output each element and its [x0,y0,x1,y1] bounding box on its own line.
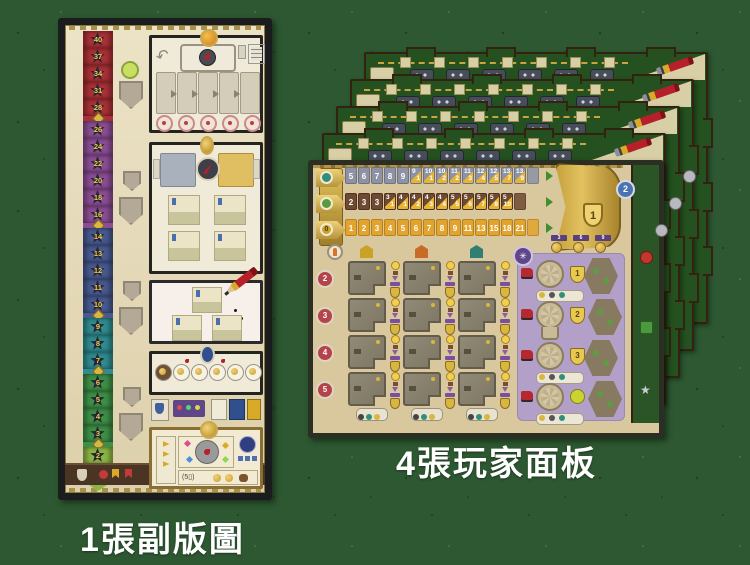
split-bottom-value: 4 [481,175,485,183]
rail-station-icon [386,84,397,95]
gold-dot [376,377,380,381]
terrain-mark [464,349,471,354]
slot-rewards [444,372,456,406]
time-panel: ↶ [149,35,263,133]
track-cell-split: 57 [475,193,487,210]
bird-oval-icon [200,345,215,364]
split-top-value: 4 [425,194,429,202]
board-edge-tab [364,128,394,138]
gold-dot [486,266,490,270]
split-bottom-value: 3 [429,201,433,209]
arrow-down-icon [502,350,508,355]
split-top-value: 9 [412,168,416,176]
medallion-value: 6 [573,235,589,241]
score-space: 4 [83,408,113,425]
list-icon [248,44,265,64]
arrow-icon [546,171,553,181]
plant-icon [593,268,599,274]
row-badge: 3 [316,307,334,325]
rail-station-icon [576,111,587,122]
slot-notch [428,395,441,406]
contract-bonus-pill [536,413,584,425]
board-green-edge: ★ [631,165,659,423]
track-cell: 13 [475,219,487,236]
split-bottom-value: 9 [520,175,524,183]
terrain-mark [354,386,361,391]
split-bottom-value: 2 [442,175,446,183]
map-card-slot [192,287,222,313]
wood-icon [503,271,508,275]
rail-station-icon [562,138,573,149]
compass-icon [196,157,220,181]
goods-hex-slot [584,258,618,294]
pill-icon [559,292,565,298]
bird-icon [205,54,210,60]
score-value: 2 [83,451,113,460]
arrow-down-icon [392,350,398,355]
caption-player-boards: 4張玩家面板 [396,436,597,485]
slot-rewards [499,372,511,406]
track-cell-split: 55 [449,193,461,210]
shield-icon [500,361,510,372]
gold-dot [431,266,435,270]
slot-notch [428,284,441,295]
board-edge-tab [618,101,648,111]
medal-icon [551,242,562,253]
bird-icon [185,359,189,363]
shield-icon [445,361,455,372]
card-slot [211,399,227,420]
fruit-icon [320,171,333,184]
slot-rewards [444,298,456,332]
shield-icon [390,398,400,409]
purple-tag-icon [445,393,455,397]
stage: 0 56789911011021121131241251371392333141… [0,0,750,565]
rail-station-icon [460,138,471,149]
board-edge-tab [604,128,634,138]
arrow-icon [192,90,198,98]
hazard-icon [570,389,585,404]
pen-panel [149,280,263,344]
board-edge-tab [458,101,488,111]
score-space: 22 [83,155,113,172]
bulb-icon [391,261,400,270]
curved-arrow-icon: ↶ [153,44,172,67]
split-bottom-value: 1 [390,201,394,209]
track-cell-split: 102 [436,167,448,184]
terrain-mark [409,275,416,280]
score-space: 37 [83,48,113,65]
track-cell-split: 91 [410,167,422,184]
gold-dot [431,340,435,344]
shield-slot [119,413,143,441]
score-space: 6 [83,374,113,391]
goods-hex-slot [588,299,622,335]
engine-icon [521,268,533,277]
pill-icon [374,414,380,420]
row-badge: 4 [316,344,334,362]
split-top-value: 4 [412,194,416,202]
rosette-slot [536,342,564,370]
plant-icon [607,319,613,325]
terrain-mark [409,386,416,391]
board-edge-tab [472,74,502,84]
blue-token-slot [236,436,258,466]
slot-rewards [389,372,401,406]
medal-icon [573,242,584,253]
score-value: 34 [83,69,113,78]
goods-hex-slot [588,381,622,417]
purple-tag-icon [445,356,455,360]
track-cell: 15 [488,219,500,236]
flag-slot [156,436,176,484]
shield-icon [445,287,455,298]
score-space: 13 [83,245,113,262]
slot-rewards [499,335,511,369]
building-slot [403,298,441,332]
pill-icon [366,414,372,420]
score-track-ribbon: 4037343128262422201816141312111098765432… [83,31,113,491]
building-slot [403,372,441,406]
track-cell-split: 44 [436,193,448,210]
split-bottom-value: 1 [429,175,433,183]
split-bottom-value: 8 [494,201,498,209]
shield-slot [123,171,141,191]
clock-icon [199,49,216,66]
ink-bottle-icon [200,136,214,155]
plant-icon [603,278,609,284]
pill-icon [358,414,364,420]
shield-icon: 3 [570,348,585,365]
pill-icon [421,414,427,420]
rail-station-icon [474,111,485,122]
score-value: 13 [83,249,113,258]
shield-slot [123,281,141,301]
split-top-value: 5 [490,194,494,202]
slot-notch [428,358,441,369]
track-cell-split: 137 [501,167,513,184]
rail-station-icon [536,57,547,68]
map-card-slot [214,231,246,261]
bonus-pill [466,408,498,421]
score-space: 9 [83,318,113,335]
split-bottom-value: 1 [403,201,407,209]
building-icon [415,245,428,258]
building-slot [348,261,386,295]
rail-station-icon [590,84,601,95]
bulb-icon [446,298,455,307]
building-slot [458,335,496,369]
score-value: 37 [83,52,113,61]
blue-shield-icon [155,403,164,414]
purple-tag-icon [390,319,400,323]
medal-slot [173,364,190,381]
score-space: 40 [83,31,113,48]
slot-notch [483,395,496,406]
rail-station-icon [454,84,465,95]
bulb-icon [501,261,510,270]
rail-station-icon [372,111,383,122]
score-value: 40 [83,35,113,44]
silver-coin [669,197,682,210]
engine-icon [521,391,533,400]
token-strip [149,399,263,423]
gold-dot [376,266,380,270]
track-cell: 9 [449,219,461,236]
pill-icon [539,374,545,380]
score-value: 22 [83,159,113,168]
purple-tag-icon [390,282,400,286]
bird-target-slot [178,436,234,468]
player-board-front: 0 56789911011021121131241251371392333141… [308,160,664,438]
flag-icon [163,461,170,467]
rail-station-icon [488,84,499,95]
gold-card-slot [247,399,261,420]
medallion: 6 [573,235,591,241]
shield-slot [123,387,141,407]
score-value: 11 [83,283,113,292]
track-cell-split: 42 [410,193,422,210]
track-cell: 3 [371,219,383,236]
wood-icon [448,271,453,275]
board-edge-tab [703,118,713,148]
card-count-label: (5▯) [182,474,194,481]
map-card-slot [214,195,246,225]
gold-dot [431,303,435,307]
rail-station-icon [426,138,437,149]
track-cell-split: 101 [423,167,435,184]
row-badge: 5 [316,381,334,399]
split-top-value: 4 [438,194,442,202]
split-bottom-value: 2 [455,175,459,183]
split-bottom-value: 4 [442,201,446,209]
rosette-slot [536,260,564,288]
pill-icon [549,415,555,421]
pill-icon [539,292,545,298]
rail-station-icon [392,138,403,149]
track-cell: 9 [397,167,409,184]
bulb-icon [391,372,400,381]
arrow-icon [234,90,240,98]
goods-hex-slot [584,340,618,376]
slot-rewards [389,261,401,295]
building-slot [348,372,386,406]
score-space: 14 [83,228,113,245]
bulb-icon [391,335,400,344]
arrow-down-icon [392,276,398,281]
score-space: 31 [83,82,113,99]
round-marker-slot [178,115,195,132]
terrain-mark [409,349,416,354]
board-edge-tab [406,47,436,57]
board-edge-tab [689,273,699,303]
shield-icon: 1 [583,203,603,227]
bulb-icon [501,298,510,307]
shield-icon [390,324,400,335]
wood-icon [393,382,398,386]
purple-tag-icon [500,356,510,360]
building-slot [458,261,496,295]
arrow-icon [171,90,177,98]
track-cell-split: 43 [423,193,435,210]
rail-station-icon [522,84,533,95]
gold-dot [486,377,490,381]
board-edge-tab [703,246,713,276]
track-cell: 5 [397,219,409,236]
rail-station-icon [406,111,417,122]
plant-icon [607,401,613,407]
building-icon [470,245,483,258]
rail-station-icon [528,138,539,149]
arrow-icon [213,90,219,98]
slot-notch [428,321,441,332]
terrain-mark [464,386,471,391]
lime-token-icon [121,61,139,79]
slot-notch [483,358,496,369]
track-row-gold-track: 1234567891113151821 [345,219,540,236]
arrow-icon [546,197,553,207]
pill-icon [539,415,545,421]
gold-seal-icon [200,421,218,439]
card-slot-blue [160,153,196,187]
track-row-gray-track: 5678991101102112113124125137139 [345,167,540,184]
arrow-down-icon [392,313,398,318]
banner-slot [173,400,205,417]
track-cell: 7 [423,219,435,236]
track-cell-split: 31 [384,193,396,210]
split-bottom-value: 10 [504,201,511,209]
side-tag [253,159,260,179]
track-cell: 21 [514,219,526,236]
medallion: 9 [595,235,613,241]
purple-tag-icon [500,282,510,286]
rail-station-icon [556,84,567,95]
score-space: 24 [83,138,113,155]
contract-bonus-pill [536,290,584,302]
medallion-value: 3 [551,235,567,241]
split-bottom-value: 1 [416,175,420,183]
wood-icon [448,308,453,312]
sub-board: 4037343128262422201816141312111098765432… [58,18,272,500]
board-edge-tab [444,128,474,138]
slot-notch [483,321,496,332]
building-slot [348,298,386,332]
board-edge-tab [378,101,408,111]
bottle-icon [238,45,246,59]
board-edge-tab [524,128,554,138]
purple-tag-icon [500,393,510,397]
score-space: 18 [83,189,113,206]
rosette-slot [536,383,564,411]
purple-tag-icon [390,356,400,360]
score-value: 20 [83,176,113,185]
track-cell: 3 [358,193,370,210]
shield-icon [500,324,510,335]
medallion-value: 9 [595,235,611,241]
arrow-down-icon [502,387,508,392]
board-edge-tab [675,236,685,266]
arch-slot [541,327,559,340]
gray-disc-icon [195,440,219,464]
rail-station-icon [468,57,479,68]
medal-slot [227,364,244,381]
bird-icon [204,449,210,455]
worker-icon [320,197,333,210]
building-icon [360,245,373,258]
board-edge-tab [632,74,662,84]
rail-station-icon [494,138,505,149]
shield-icon [500,398,510,409]
medallion: 3 [551,235,569,241]
plant-icon [597,391,603,397]
score-space: 34 [83,65,113,82]
round-marker-slot [244,115,261,132]
caption-sub-board: 1張副版圖 [80,512,245,561]
medal-icon [595,242,606,253]
score-value: 12 [83,266,113,275]
balloon-icon [640,251,653,264]
split-bottom-value: 2 [416,201,420,209]
board-edge-tab [392,74,422,84]
shield-icon: 1 [570,266,585,283]
score-space: 20 [83,172,113,189]
wood-icon [503,382,508,386]
shield-icon: 2 [570,307,585,324]
shield-icon [445,324,455,335]
board-edge-tab [566,47,596,57]
rail-station-icon [400,57,411,68]
contract-panel: ✳ 123 [517,253,625,421]
plant-icon [603,360,609,366]
map-card-slot [212,315,242,341]
wood-icon [503,345,508,349]
round-marker-slot [222,115,239,132]
filigree-top [69,26,261,30]
split-top-value: 5 [464,194,468,202]
split-top-value: 5 [477,194,481,202]
pill-icon [549,374,555,380]
star-icon: ★ [640,385,651,396]
score-space: 26 [83,121,113,138]
building-slot [458,298,496,332]
bonus-pill [356,408,388,421]
worker-icon [327,244,343,260]
score-space: 12 [83,262,113,279]
round-marker-slot [200,115,217,132]
slot-rewards [444,335,456,369]
purple-tag-icon [500,319,510,323]
track-cell: 6 [410,219,422,236]
score-value: 9 [83,322,113,331]
medal-slot [245,364,262,381]
slot-rewards [389,298,401,332]
terrain-mark [354,349,361,354]
track-cell: 8 [384,167,396,184]
split-top-value: 4 [399,194,403,202]
track-cell: 5 [345,167,357,184]
rail-station-icon [542,111,553,122]
track-row-brown-track: 233314142434455565758510 [345,193,527,210]
gold-dot [486,303,490,307]
score-value: 14 [83,232,113,241]
map-card-slot [168,195,200,225]
summary-panel: (5▯) [149,427,263,489]
wood-icon [393,271,398,275]
silver-coin [655,224,668,237]
wood-icon [448,382,453,386]
slot-notch [483,284,496,295]
rail-station-icon [420,84,431,95]
